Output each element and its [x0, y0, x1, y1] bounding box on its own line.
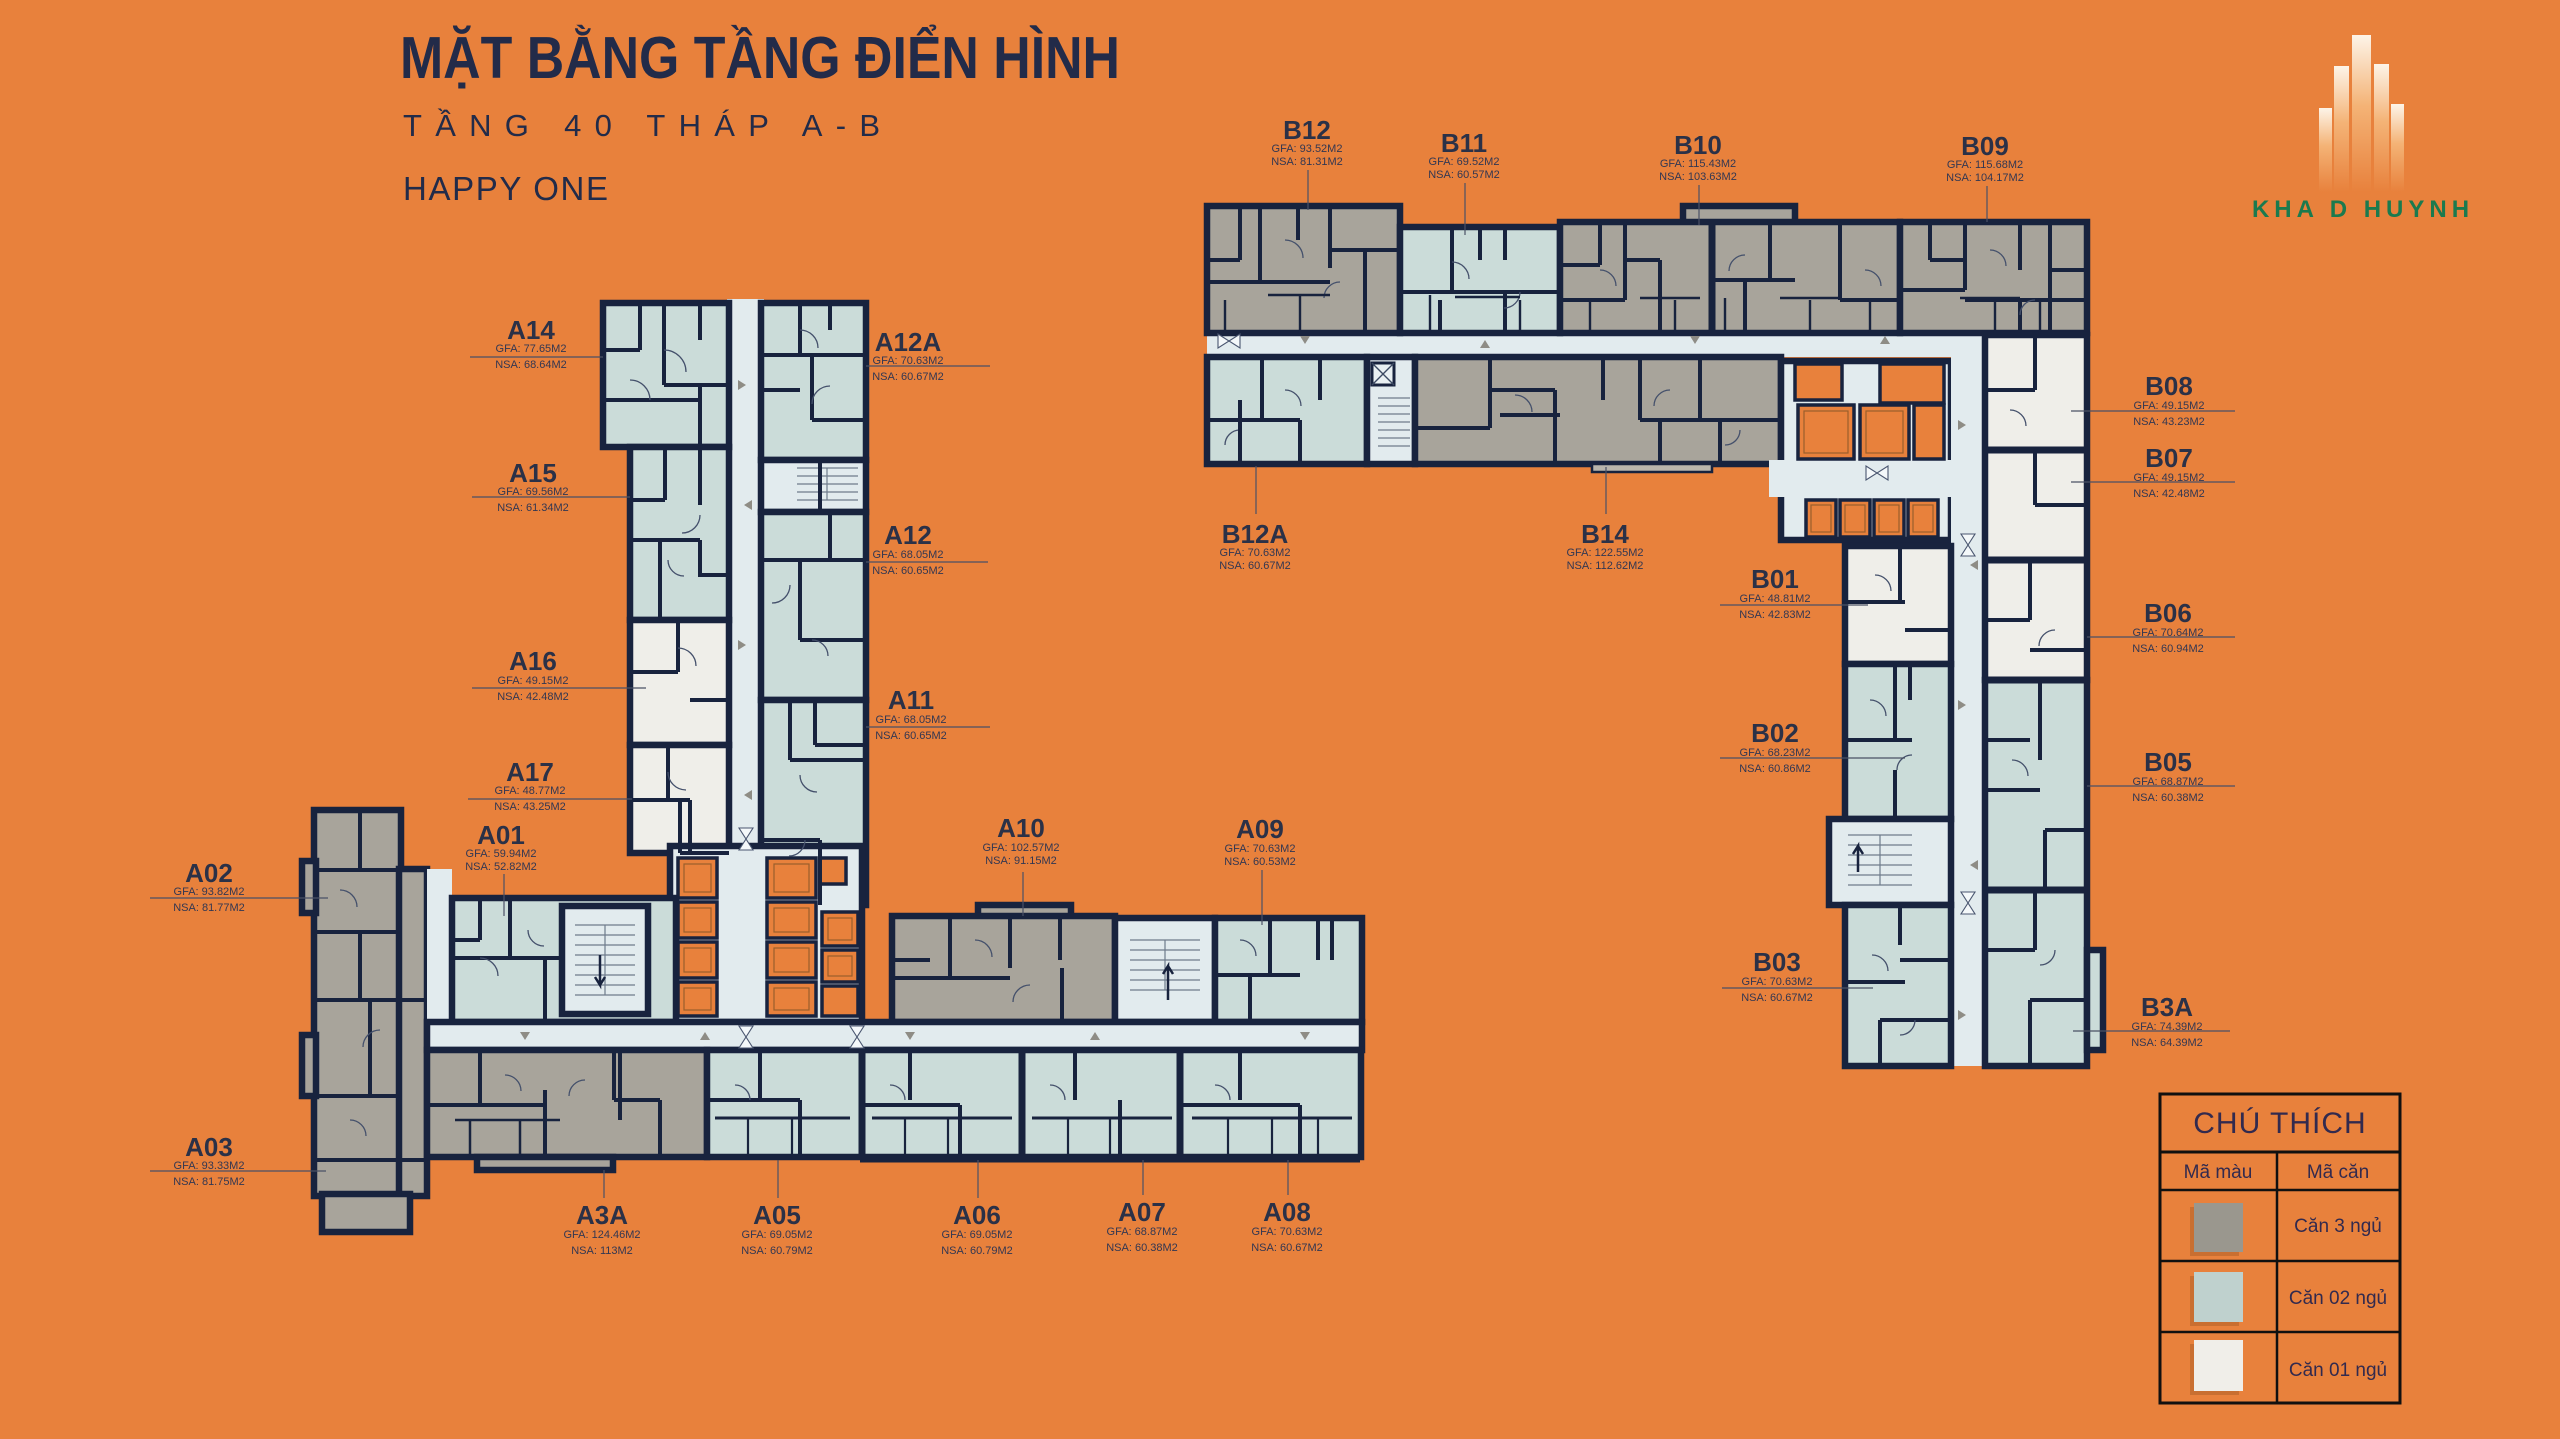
svg-text:B11: B11	[1441, 128, 1487, 158]
svg-text:GFA: 48.77M2: GFA: 48.77M2	[495, 785, 566, 797]
svg-text:GFA: 122.55M2: GFA: 122.55M2	[1566, 547, 1643, 559]
svg-text:Mã màu: Mã màu	[2184, 1162, 2253, 1183]
svg-text:A09: A09	[1236, 814, 1284, 844]
svg-text:NSA: 81.77M2: NSA: 81.77M2	[173, 902, 245, 914]
svg-text:GFA: 59.94M2: GFA: 59.94M2	[466, 848, 537, 860]
svg-text:A16: A16	[509, 646, 557, 676]
svg-text:GFA: 93.33M2: GFA: 93.33M2	[174, 1160, 245, 1172]
svg-text:A3A: A3A	[576, 1200, 628, 1230]
svg-text:NSA: 60.65M2: NSA: 60.65M2	[875, 730, 947, 742]
svg-text:GFA: 115.68M2: GFA: 115.68M2	[1947, 159, 2023, 171]
svg-text:GFA: 69.05M2: GFA: 69.05M2	[942, 1229, 1013, 1241]
svg-text:NSA: 60.38M2: NSA: 60.38M2	[2132, 792, 2204, 804]
svg-text:A10: A10	[997, 813, 1045, 843]
svg-text:A03: A03	[185, 1132, 233, 1162]
svg-text:NSA: 60.57M2: NSA: 60.57M2	[1428, 169, 1500, 181]
svg-text:NSA: 68.64M2: NSA: 68.64M2	[495, 359, 567, 371]
svg-text:GFA: 115.43M2: GFA: 115.43M2	[1660, 158, 1736, 170]
svg-text:NSA: 43.25M2: NSA: 43.25M2	[494, 801, 566, 813]
svg-text:NSA: 81.75M2: NSA: 81.75M2	[173, 1176, 245, 1188]
svg-text:NSA: 60.94M2: NSA: 60.94M2	[2132, 643, 2204, 655]
svg-text:NSA: 60.67M2: NSA: 60.67M2	[1741, 992, 1813, 1004]
svg-text:CHÚ THÍCH: CHÚ THÍCH	[2193, 1107, 2366, 1140]
svg-text:NSA: 113M2: NSA: 113M2	[571, 1245, 633, 1257]
svg-text:B12: B12	[1283, 115, 1331, 145]
svg-text:NSA: 60.67M2: NSA: 60.67M2	[1251, 1242, 1323, 1254]
svg-text:B05: B05	[2144, 747, 2192, 777]
svg-text:NSA: 42.48M2: NSA: 42.48M2	[2133, 488, 2205, 500]
svg-text:NSA: 60.38M2: NSA: 60.38M2	[1106, 1242, 1178, 1254]
svg-text:GFA: 70.63M2: GFA: 70.63M2	[1220, 547, 1291, 559]
svg-text:NSA: 60.79M2: NSA: 60.79M2	[741, 1245, 813, 1257]
svg-text:NSA: 42.48M2: NSA: 42.48M2	[497, 691, 569, 703]
svg-text:B09: B09	[1961, 131, 2009, 161]
svg-text:NSA: 60.67M2: NSA: 60.67M2	[872, 371, 944, 383]
svg-text:A14: A14	[507, 315, 555, 345]
svg-text:A11: A11	[888, 685, 934, 715]
svg-text:GFA: 70.63M2: GFA: 70.63M2	[1742, 976, 1813, 988]
svg-text:Mã căn: Mã căn	[2307, 1162, 2369, 1183]
svg-text:NSA: 103.63M2: NSA: 103.63M2	[1659, 171, 1737, 183]
svg-text:A06: A06	[953, 1200, 1001, 1230]
svg-text:B10: B10	[1674, 130, 1722, 160]
svg-text:A12: A12	[884, 520, 932, 550]
svg-text:GFA: 68.23M2: GFA: 68.23M2	[1740, 747, 1811, 759]
svg-text:NSA: 42.83M2: NSA: 42.83M2	[1739, 609, 1811, 621]
svg-text:GFA: 124.46M2: GFA: 124.46M2	[563, 1229, 640, 1241]
svg-text:A17: A17	[506, 757, 554, 787]
svg-text:GFA: 70.63M2: GFA: 70.63M2	[1225, 843, 1296, 855]
svg-text:HAPPY ONE: HAPPY ONE	[403, 170, 608, 207]
svg-text:A15: A15	[509, 458, 557, 488]
svg-text:GFA: 70.63M2: GFA: 70.63M2	[1252, 1226, 1323, 1238]
svg-text:A07: A07	[1118, 1197, 1166, 1227]
svg-text:GFA: 93.82M2: GFA: 93.82M2	[174, 886, 245, 898]
svg-text:GFA: 69.05M2: GFA: 69.05M2	[742, 1229, 813, 1241]
svg-text:A05: A05	[753, 1200, 801, 1230]
svg-text:B14: B14	[1581, 519, 1629, 549]
svg-text:NSA: 43.23M2: NSA: 43.23M2	[2133, 416, 2205, 428]
svg-text:B12A: B12A	[1222, 519, 1289, 549]
svg-text:GFA: 49.15M2: GFA: 49.15M2	[2134, 400, 2205, 412]
svg-text:NSA: 60.79M2: NSA: 60.79M2	[941, 1245, 1013, 1257]
svg-text:GFA: 49.15M2: GFA: 49.15M2	[498, 675, 569, 687]
svg-text:NSA: 60.67M2: NSA: 60.67M2	[1219, 560, 1291, 572]
svg-text:MẶT BẰNG TẦNG ĐIỂN HÌNH: MẶT BẰNG TẦNG ĐIỂN HÌNH	[400, 25, 1120, 91]
svg-text:GFA: 68.05M2: GFA: 68.05M2	[876, 714, 947, 726]
svg-text:GFA: 70.63M2: GFA: 70.63M2	[873, 355, 944, 367]
svg-text:A01: A01	[477, 820, 525, 850]
svg-text:B3A: B3A	[2141, 992, 2193, 1022]
svg-text:GFA: 69.52M2: GFA: 69.52M2	[1429, 156, 1500, 168]
svg-text:Căn 02 ngủ: Căn 02 ngủ	[2289, 1288, 2387, 1309]
svg-text:KHA D HUYNH: KHA D HUYNH	[2252, 196, 2474, 223]
svg-text:B08: B08	[2145, 371, 2193, 401]
svg-text:NSA: 60.86M2: NSA: 60.86M2	[1739, 763, 1811, 775]
svg-text:Căn 3 ngủ: Căn 3 ngủ	[2294, 1216, 2382, 1237]
svg-text:B03: B03	[1753, 947, 1801, 977]
svg-text:GFA: 77.65M2: GFA: 77.65M2	[496, 343, 567, 355]
svg-text:NSA: 104.17M2: NSA: 104.17M2	[1946, 172, 2024, 184]
svg-text:Căn 01 ngủ: Căn 01 ngủ	[2289, 1360, 2387, 1381]
svg-text:B01: B01	[1751, 564, 1799, 594]
svg-text:NSA: 81.31M2: NSA: 81.31M2	[1271, 156, 1343, 168]
svg-text:GFA: 68.05M2: GFA: 68.05M2	[873, 549, 944, 561]
svg-text:NSA: 61.34M2: NSA: 61.34M2	[497, 502, 569, 514]
svg-text:A12A: A12A	[875, 327, 942, 357]
svg-text:NSA: 60.65M2: NSA: 60.65M2	[872, 565, 944, 577]
svg-text:A02: A02	[185, 858, 233, 888]
svg-text:B06: B06	[2144, 598, 2192, 628]
svg-text:NSA: 64.39M2: NSA: 64.39M2	[2131, 1037, 2203, 1049]
svg-text:B07: B07	[2145, 443, 2193, 473]
svg-text:NSA: 112.62M2: NSA: 112.62M2	[1567, 560, 1644, 572]
svg-text:NSA: 52.82M2: NSA: 52.82M2	[465, 861, 537, 873]
svg-text:B02: B02	[1751, 718, 1799, 748]
svg-text:GFA: 93.52M2: GFA: 93.52M2	[1272, 143, 1343, 155]
svg-text:NSA: 60.53M2: NSA: 60.53M2	[1224, 856, 1296, 868]
svg-text:NSA: 91.15M2: NSA: 91.15M2	[985, 855, 1057, 867]
svg-text:GFA: 102.57M2: GFA: 102.57M2	[982, 842, 1059, 854]
svg-text:GFA: 48.81M2: GFA: 48.81M2	[1740, 593, 1811, 605]
svg-text:GFA: 69.56M2: GFA: 69.56M2	[498, 486, 569, 498]
svg-text:GFA: 68.87M2: GFA: 68.87M2	[1107, 1226, 1178, 1238]
svg-text:A08: A08	[1263, 1197, 1311, 1227]
